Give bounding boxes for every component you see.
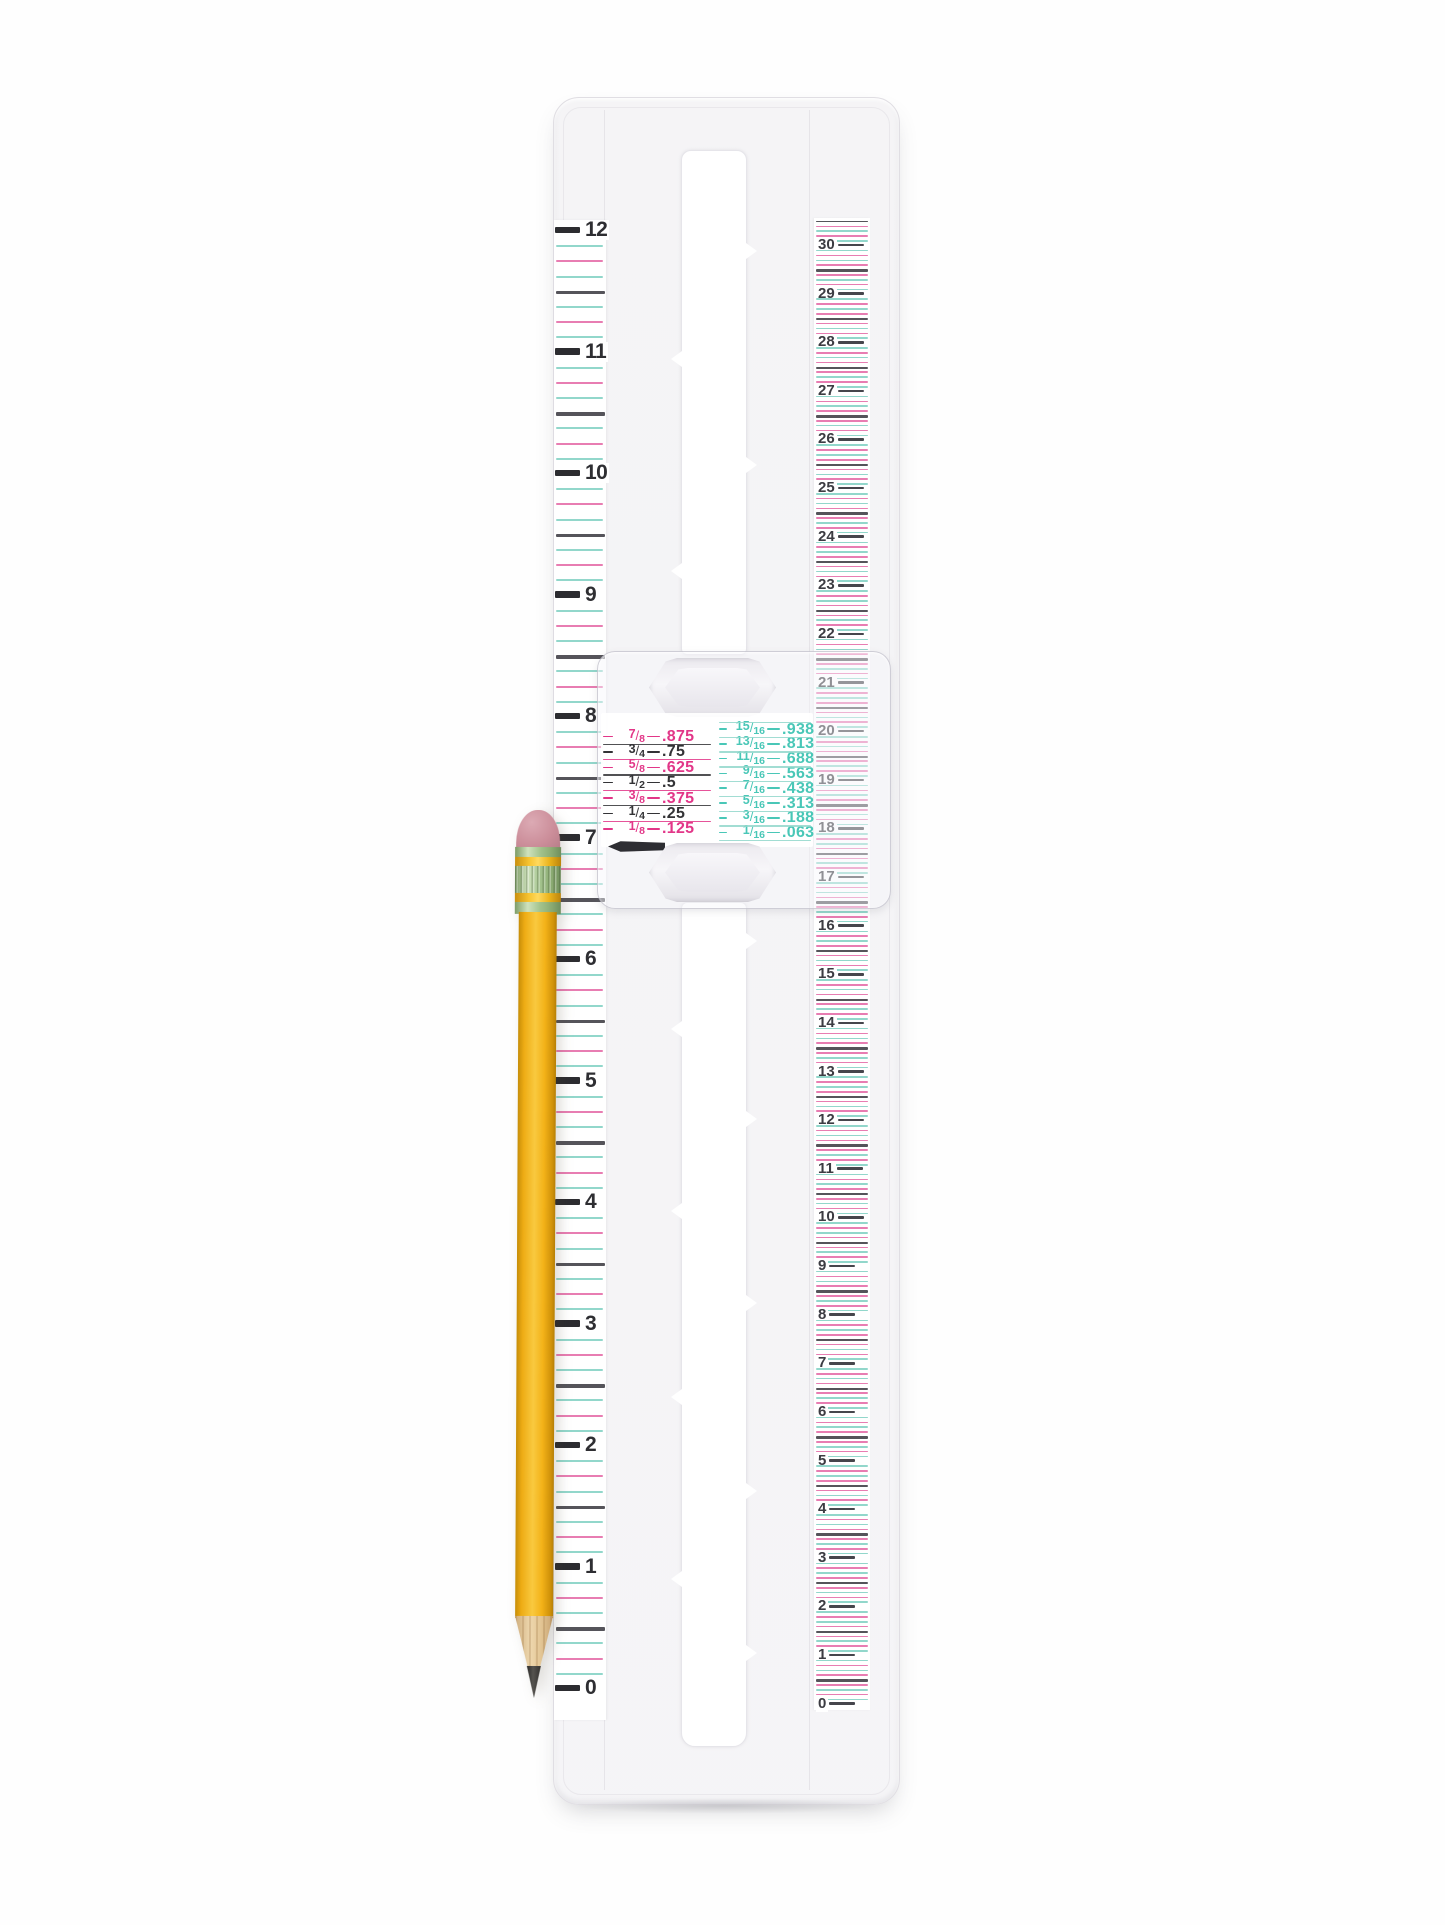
minor-line — [816, 459, 868, 461]
minor-line — [556, 1096, 603, 1098]
inch-label: 2 — [583, 1435, 598, 1455]
minor-line — [556, 1232, 603, 1234]
decimal-value: .563 — [782, 766, 814, 781]
inch-scale: 1211109876543210 — [554, 220, 606, 1720]
minor-line — [556, 1263, 605, 1267]
minor-line — [556, 929, 603, 931]
conversion-chart: 7/8.8753/4.755/8.6251/2.53/8.3751/4.251/… — [601, 713, 813, 847]
minor-line — [816, 1538, 868, 1540]
minor-line — [556, 367, 603, 369]
minor-line — [556, 1278, 603, 1280]
minor-line — [816, 303, 868, 305]
minor-line — [816, 1086, 868, 1088]
minor-line — [816, 1670, 868, 1672]
minor-line — [556, 610, 603, 612]
minor-line — [816, 1490, 868, 1492]
minor-line — [556, 488, 603, 490]
decimal-value: .375 — [662, 791, 694, 806]
minor-line — [816, 945, 868, 947]
minor-line — [556, 853, 603, 855]
minor-line — [816, 517, 868, 519]
minor-line — [816, 1247, 868, 1249]
decimal-value: .688 — [782, 751, 814, 766]
minor-line — [816, 542, 868, 544]
minor-line — [816, 1125, 868, 1127]
minor-line — [816, 1198, 868, 1200]
minor-line — [816, 1524, 868, 1526]
minor-line — [556, 412, 605, 416]
chart-leader-line — [719, 802, 727, 804]
inch-mark: 3 — [555, 1314, 598, 1334]
minor-line — [816, 1611, 868, 1613]
minor-line — [816, 1188, 868, 1190]
minor-line — [816, 279, 868, 281]
chart-leader-line — [603, 813, 613, 815]
inch-label: 4 — [583, 1192, 598, 1212]
minor-line — [556, 625, 603, 627]
cm-tick — [838, 584, 864, 587]
minor-line — [816, 498, 868, 500]
minor-line — [816, 999, 868, 1001]
minor-line — [816, 605, 868, 607]
inch-label: 0 — [583, 1678, 598, 1698]
minor-line — [556, 1339, 603, 1341]
minor-line — [816, 1232, 868, 1234]
minor-line — [816, 226, 868, 228]
pencil-wood-cone — [515, 1616, 553, 1672]
minor-line — [816, 493, 868, 495]
chart-separator-line — [719, 811, 811, 812]
minor-line — [556, 1293, 603, 1295]
decimal-value: .313 — [782, 796, 814, 811]
inch-mark: 2 — [555, 1435, 598, 1455]
minor-line — [816, 1295, 868, 1297]
inch-mark: 4 — [555, 1192, 598, 1212]
cm-tick — [829, 1459, 855, 1462]
minor-line — [816, 989, 868, 991]
minor-line — [556, 1506, 605, 1510]
minor-line — [816, 1193, 868, 1195]
chart-dash-line — [647, 751, 660, 753]
chart-dash-line — [647, 828, 660, 830]
decimal-value: .5 — [662, 775, 676, 790]
minor-line — [556, 1248, 603, 1250]
minor-line — [556, 868, 603, 870]
cm-tick — [838, 924, 864, 927]
inch-label: 5 — [583, 1071, 598, 1091]
minor-line — [816, 1057, 868, 1059]
cm-mark: 0 — [816, 1696, 855, 1712]
minor-line — [816, 960, 868, 962]
right-rail-edge — [809, 110, 810, 1790]
minor-line — [556, 898, 605, 902]
minor-line — [556, 1035, 603, 1037]
chart-dash-line — [767, 802, 780, 804]
cm-tick — [838, 973, 864, 976]
minor-line — [816, 1495, 868, 1497]
minor-line — [816, 1519, 868, 1521]
cm-tick — [838, 535, 864, 538]
minor-line — [816, 935, 868, 937]
minor-line — [816, 230, 868, 232]
chart-leader-line — [719, 773, 727, 775]
minor-line — [556, 427, 603, 429]
minor-line — [816, 649, 868, 651]
minor-line — [816, 1008, 868, 1010]
minor-line — [556, 762, 603, 764]
minor-line — [816, 522, 868, 524]
cm-tick — [838, 487, 864, 490]
minor-line — [816, 401, 868, 403]
center-slot-bottom — [681, 902, 747, 1747]
minor-line — [816, 1480, 868, 1482]
minor-line — [816, 474, 868, 476]
minor-line — [816, 1514, 868, 1516]
minor-line — [556, 1126, 603, 1128]
minor-line — [816, 1388, 868, 1390]
minor-line — [556, 746, 603, 748]
minor-line — [816, 410, 868, 412]
cm-tick — [838, 1216, 864, 1219]
inch-mark: 1 — [555, 1557, 598, 1577]
minor-line — [556, 1065, 603, 1067]
minor-line — [816, 1183, 868, 1185]
minor-line — [556, 792, 603, 794]
chart-row: 1/16.063 — [719, 825, 814, 840]
minor-line — [816, 1140, 868, 1142]
minor-line — [816, 512, 868, 514]
inch-label: 11 — [583, 342, 608, 362]
minor-line — [816, 221, 868, 223]
minor-line — [816, 357, 868, 359]
pencil-ferrule — [515, 847, 561, 914]
ground-shadow — [575, 1798, 875, 1814]
minor-line — [816, 1446, 868, 1448]
cm-tick — [838, 390, 864, 393]
decimal-value: .438 — [782, 781, 814, 796]
minor-line — [816, 1470, 868, 1472]
decimal-value: .125 — [662, 821, 694, 836]
cm-scale: 3029282726252423222120191817161514131211… — [814, 218, 870, 1710]
chart-leader-line — [719, 787, 727, 789]
chart-leader-line — [603, 751, 613, 753]
chart-separator-line — [719, 722, 811, 723]
minor-line — [556, 519, 603, 521]
minor-line — [816, 1684, 868, 1686]
minor-line — [816, 274, 868, 276]
inch-label: 9 — [583, 585, 598, 605]
chart-row: 1/8.125 — [603, 821, 694, 836]
minor-line — [556, 1582, 603, 1584]
minor-line — [816, 1567, 868, 1569]
inch-tick — [555, 1563, 580, 1570]
minor-line — [816, 1290, 868, 1292]
chart-dash-line — [767, 773, 780, 775]
chart-leader-line — [719, 817, 727, 819]
minor-line — [816, 1033, 868, 1035]
minor-line — [816, 405, 868, 407]
minor-line — [556, 1475, 603, 1477]
minor-line — [816, 1572, 868, 1574]
minor-line — [816, 979, 868, 981]
minor-line — [556, 1536, 603, 1538]
minor-line — [816, 931, 868, 933]
chart-dash-line — [767, 787, 780, 789]
minor-line — [816, 503, 868, 505]
inch-tick — [555, 713, 580, 720]
minor-line — [816, 1144, 868, 1146]
minor-line — [816, 1422, 868, 1424]
minor-line — [816, 449, 868, 451]
cm-tick — [838, 1119, 864, 1122]
minor-line — [816, 1587, 868, 1589]
cm-tick — [838, 1022, 864, 1025]
minor-line — [816, 1431, 868, 1433]
minor-line — [816, 644, 868, 646]
minor-line — [556, 1627, 605, 1631]
minor-line — [816, 590, 868, 592]
minor-line — [556, 1597, 603, 1599]
minor-line — [816, 1281, 868, 1283]
minor-line — [816, 1349, 868, 1351]
chart-dash-line — [647, 767, 660, 769]
minor-line — [816, 1636, 868, 1638]
inch-label: 8 — [583, 706, 598, 726]
chart-dash-line — [767, 758, 780, 760]
minor-line — [816, 352, 868, 354]
minor-line — [556, 1050, 603, 1052]
minor-line — [816, 1436, 868, 1438]
minor-line — [556, 701, 603, 703]
minor-line — [816, 1076, 868, 1078]
minor-line — [816, 1378, 868, 1380]
minor-line — [556, 276, 603, 278]
photo-scene: 1211109876543210 30292827262524232221201… — [0, 0, 1445, 1925]
minor-line — [816, 1616, 868, 1618]
minor-line — [816, 561, 868, 563]
minor-line — [816, 1426, 868, 1428]
chart-leader-line — [603, 828, 613, 830]
center-slot-top — [681, 150, 747, 655]
minor-line — [816, 1106, 868, 1108]
minor-line — [816, 1577, 868, 1579]
chart-leader-line — [603, 782, 613, 784]
minor-line — [816, 323, 868, 325]
minor-line — [556, 397, 603, 399]
inch-tick — [555, 591, 580, 598]
ferrule-ridged-band — [515, 866, 561, 894]
minor-line — [556, 1551, 603, 1553]
minor-line — [816, 420, 868, 422]
chart-separator-line — [719, 751, 811, 752]
chart-dash-line — [767, 728, 780, 730]
cm-tick — [829, 1556, 855, 1559]
minor-line — [816, 1485, 868, 1487]
minor-line — [816, 308, 868, 310]
minor-line — [816, 371, 868, 373]
minor-line — [556, 534, 605, 538]
cm-tick — [829, 1508, 855, 1511]
minor-line — [816, 298, 868, 300]
minor-line — [556, 944, 603, 946]
minor-line — [816, 1237, 868, 1239]
minor-line — [556, 564, 603, 566]
minor-line — [816, 367, 868, 369]
pencil-body — [515, 912, 557, 1618]
minor-line — [556, 443, 603, 445]
minor-line — [816, 318, 868, 320]
inch-mark: 12 — [555, 220, 609, 240]
minor-line — [816, 1475, 868, 1477]
inch-mark: 10 — [555, 463, 609, 483]
minor-line — [556, 731, 603, 733]
minor-line — [816, 1154, 868, 1156]
minor-line — [816, 1674, 868, 1676]
minor-line — [816, 1300, 868, 1302]
chart-leader-line — [719, 832, 727, 834]
minor-line — [816, 362, 868, 364]
minor-line — [556, 1415, 603, 1417]
slider-bottom-grip — [649, 843, 776, 902]
slider-top-grip — [649, 658, 776, 717]
minor-line — [816, 940, 868, 942]
minor-line — [556, 1005, 603, 1007]
minor-line — [556, 1642, 603, 1644]
cm-tick — [829, 1702, 855, 1705]
chart-leader-line — [719, 728, 727, 730]
minor-line — [816, 600, 868, 602]
minor-line — [816, 1626, 868, 1628]
minor-line — [816, 1276, 868, 1278]
minor-line — [816, 551, 868, 553]
minor-line — [816, 1334, 868, 1336]
minor-line — [556, 1141, 605, 1145]
minor-line — [556, 1399, 603, 1401]
minor-line — [816, 464, 868, 466]
minor-line — [556, 1430, 603, 1432]
minor-line — [816, 1222, 868, 1224]
minor-line — [816, 444, 868, 446]
cm-tick — [838, 633, 864, 636]
inch-tick — [555, 1685, 580, 1692]
minor-line — [816, 950, 868, 952]
minor-line — [556, 306, 603, 308]
minor-line — [556, 1491, 603, 1493]
chart-dash-line — [647, 813, 660, 815]
inch-tick — [555, 348, 580, 355]
minor-line — [556, 913, 603, 915]
minor-line — [816, 1441, 868, 1443]
minor-line — [816, 1592, 868, 1594]
minor-line — [816, 1533, 868, 1535]
minor-line — [556, 655, 605, 659]
slider: 7/8.8753/4.755/8.6251/2.53/8.3751/4.251/… — [597, 651, 891, 909]
minor-line — [816, 260, 868, 262]
minor-line — [816, 566, 868, 568]
minor-line — [816, 1324, 868, 1326]
inch-mark: 9 — [555, 585, 598, 605]
minor-line — [816, 1101, 868, 1103]
minor-line — [556, 1612, 603, 1614]
minor-line — [816, 911, 868, 913]
chart-separator-line — [719, 796, 811, 797]
minor-line — [816, 1344, 868, 1346]
chart-dash-line — [647, 782, 660, 784]
slider-bottom-grip-inner — [665, 853, 760, 892]
chart-leader-line — [719, 758, 727, 760]
minor-line — [816, 1689, 868, 1691]
minor-line — [556, 336, 603, 338]
minor-line — [816, 1251, 868, 1253]
minor-line — [556, 974, 603, 976]
minor-line — [816, 1373, 868, 1375]
decimal-value: .063 — [782, 825, 814, 840]
chart-leader-line — [719, 743, 727, 745]
minor-line — [816, 1174, 868, 1176]
slider-top-grip-inner — [665, 668, 760, 707]
chart-separator-line — [719, 840, 811, 841]
minor-line — [556, 1521, 603, 1523]
minor-line — [556, 1369, 603, 1371]
decimal-value: .25 — [662, 806, 685, 821]
cm-tick — [837, 1167, 863, 1170]
minor-line — [556, 807, 603, 809]
minor-line — [816, 571, 868, 573]
minor-line — [556, 1217, 603, 1219]
minor-line — [556, 503, 603, 505]
minor-line — [556, 1460, 603, 1462]
minor-line — [556, 989, 603, 991]
cm-tick — [838, 244, 864, 247]
inch-label: 10 — [583, 463, 609, 483]
cm-tick — [838, 341, 864, 344]
cm-tick — [838, 438, 864, 441]
minor-line — [816, 546, 868, 548]
chart-leader-line — [603, 797, 613, 799]
minor-line — [816, 508, 868, 510]
minor-line — [556, 579, 603, 581]
minor-line — [556, 245, 603, 247]
minor-line — [556, 1172, 603, 1174]
cm-tick — [829, 1265, 855, 1268]
cm-tick — [829, 1362, 855, 1365]
pencil — [510, 810, 563, 1700]
minor-line — [556, 1308, 603, 1310]
cm-tick — [838, 1070, 864, 1073]
minor-line — [816, 376, 868, 378]
minor-line — [556, 1658, 603, 1660]
minor-line — [816, 313, 868, 315]
minor-line — [816, 1081, 868, 1083]
pencil-graphite-tip — [527, 1666, 541, 1698]
chart-dash-line — [647, 736, 660, 738]
inch-label: 12 — [583, 220, 609, 240]
minor-line — [556, 321, 603, 323]
inch-mark: 8 — [555, 706, 598, 726]
minor-line — [816, 556, 868, 558]
minor-line — [816, 415, 868, 417]
minor-line — [816, 994, 868, 996]
chart-separator-line — [719, 737, 811, 738]
minor-line — [816, 1631, 868, 1633]
minor-line — [556, 640, 603, 642]
minor-line — [816, 1179, 868, 1181]
minor-line — [816, 1320, 868, 1322]
inch-tick — [555, 470, 580, 477]
minor-line — [816, 955, 868, 957]
minor-line — [556, 1354, 603, 1356]
minor-line — [816, 610, 868, 612]
